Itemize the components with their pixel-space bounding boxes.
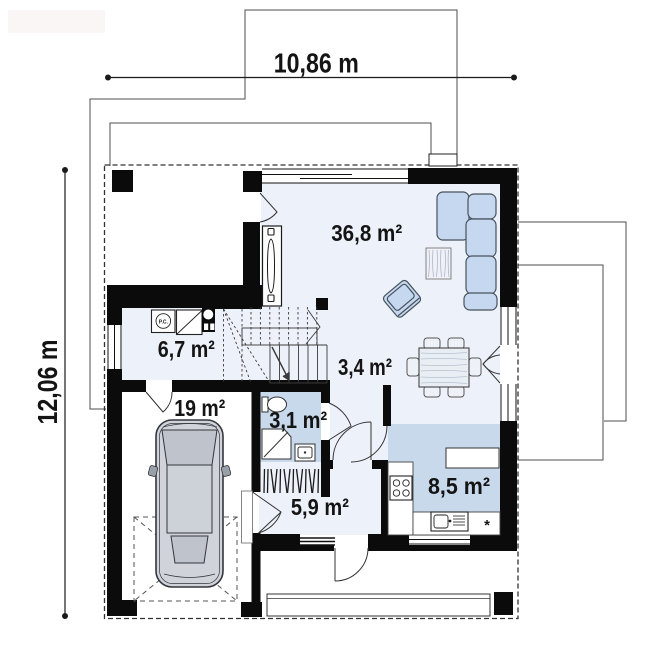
svg-text:19 m²: 19 m² [174, 395, 225, 421]
svg-text:3,1 m²: 3,1 m² [269, 407, 327, 433]
svg-text:8,5 m²: 8,5 m² [428, 473, 490, 499]
svg-text:12,06 m: 12,06 m [32, 340, 63, 425]
svg-text:3,4 m²: 3,4 m² [338, 354, 392, 380]
svg-text:P.C.: P.C. [159, 319, 169, 325]
svg-text:6,7 m²: 6,7 m² [158, 336, 215, 362]
svg-text:5,9 m²: 5,9 m² [291, 494, 349, 520]
svg-text:*: * [484, 517, 490, 534]
svg-text:36,8 m²: 36,8 m² [331, 220, 402, 246]
svg-text:10,86 m: 10,86 m [274, 48, 359, 79]
